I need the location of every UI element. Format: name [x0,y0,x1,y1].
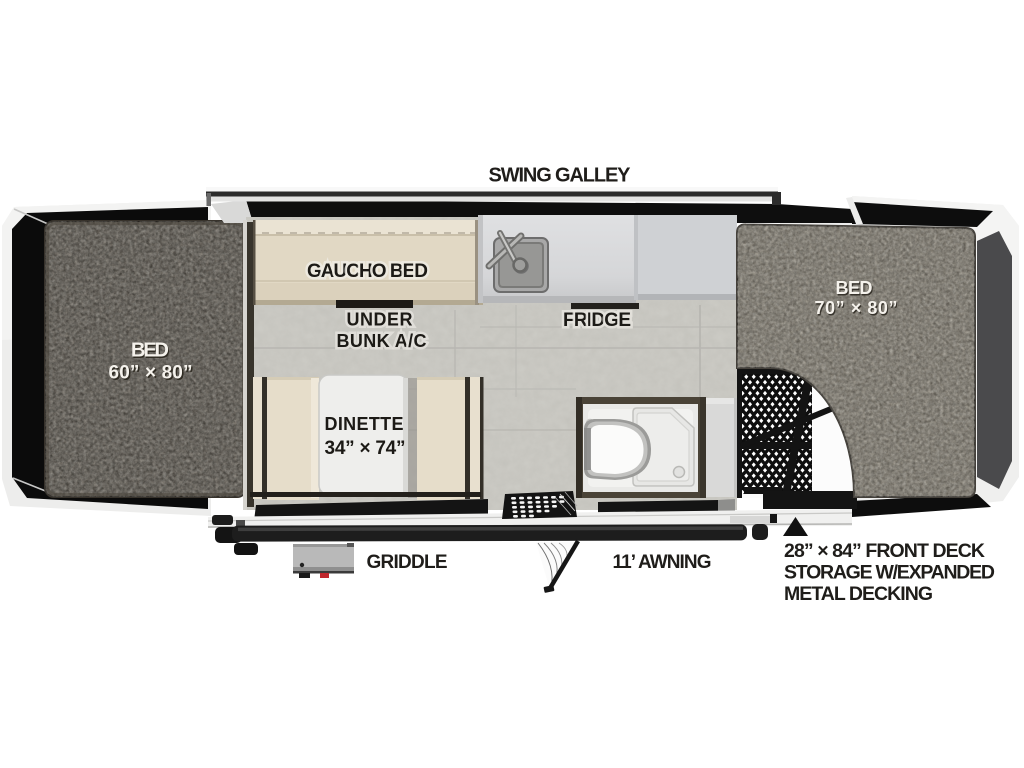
svg-text:SWING GALLEY: SWING GALLEY [489,165,632,187]
svg-text:UNDER: UNDER [347,310,413,330]
svg-text:FRIDGE: FRIDGE [563,310,631,331]
svg-text:BUNK A/C: BUNK A/C [337,331,427,351]
svg-text:DINETTE: DINETTE [325,414,404,434]
svg-text:STORAGE W/EXPANDED: STORAGE W/EXPANDED [784,562,995,584]
svg-text:34” × 74”: 34” × 74” [325,438,406,459]
svg-text:60” × 80”: 60” × 80” [109,363,193,384]
svg-text:70” × 80”: 70” × 80” [815,298,898,318]
svg-text:METAL DECKING: METAL DECKING [784,583,933,605]
svg-text:BED: BED [131,340,169,362]
svg-text:28” × 84” FRONT DECK: 28” × 84” FRONT DECK [784,540,985,562]
svg-text:11’ AWNING: 11’ AWNING [613,552,712,573]
svg-text:GAUCHO BED: GAUCHO BED [307,261,428,282]
svg-text:BED: BED [836,278,873,298]
svg-text:GRIDDLE: GRIDDLE [367,552,448,573]
